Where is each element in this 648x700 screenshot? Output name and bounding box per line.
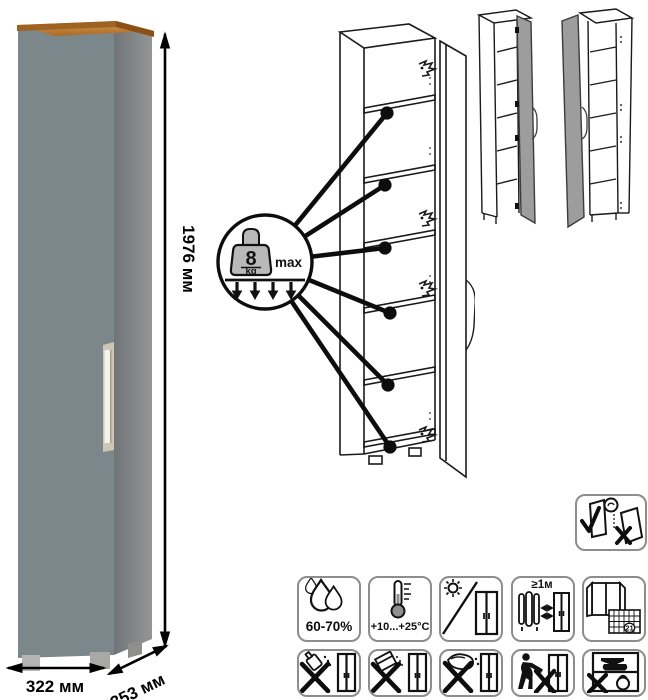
door-handle (103, 342, 114, 452)
weight-unit: kg (245, 266, 256, 277)
variant-door-panel (517, 16, 535, 223)
drip-dots (475, 658, 479, 665)
height-dimension: 1976 мм (161, 33, 199, 647)
no-overloading-box (582, 649, 646, 697)
radiator-glyph (519, 592, 539, 631)
anvil-glyph (601, 658, 627, 671)
variant-door-panel (562, 15, 584, 227)
no-dragging-icon (513, 651, 573, 693)
temperature-range-box: +10...+25°C (368, 576, 432, 642)
height-label: 1976 мм (179, 225, 198, 293)
hinges (419, 61, 435, 442)
no-solvents-icon (299, 651, 359, 693)
humidity-label: 60-70% (299, 620, 359, 634)
humidity-range-box: 60-70% (297, 576, 361, 642)
shelf-load-callout: 8 kg max (218, 215, 312, 309)
no-wet-cloth-icon (441, 651, 501, 693)
no-solvents-box (297, 649, 361, 697)
wardrobe-glyph (476, 592, 497, 634)
open-door (440, 41, 475, 477)
cabinet-side-panel (114, 26, 152, 655)
wardrobe-glyph (409, 654, 426, 691)
max-label: max (275, 255, 303, 270)
open-cabinet-diagram: 8 kg max (213, 8, 475, 508)
ventilation-calendar-icon: 21 (584, 578, 644, 638)
spacing-arrows (542, 606, 552, 618)
door-upright-icon (578, 496, 644, 546)
width-label: 322 мм (26, 677, 84, 696)
avoid-direct-sunlight-icon (441, 578, 501, 638)
min-distance-from-heat-icon: ≥1м (513, 578, 573, 638)
distance-label: ≥1м (531, 579, 552, 591)
temperature-range-icon (370, 578, 430, 620)
variant-door-left (558, 7, 646, 237)
wardrobe-glyph (554, 593, 569, 631)
no-abrasive-powder-icon (370, 651, 430, 693)
cabinet-body (17, 21, 154, 671)
humidity-range-icon (299, 578, 359, 620)
variant-door-right (474, 7, 550, 237)
calendar-day-label: 21 (625, 624, 633, 633)
no-dragging-box (511, 649, 575, 697)
avoid-direct-sunlight-box (439, 576, 503, 642)
shelves (364, 95, 435, 447)
cabinet-front-door (18, 26, 114, 658)
no-abrasive-powder-box (368, 649, 432, 697)
no-overloading-icon (584, 651, 644, 693)
wardrobe-glyph (481, 654, 497, 691)
shelf-pin-dots (620, 36, 622, 209)
cabinet-photo: 1976 мм 322 мм 353 мм (6, 14, 206, 700)
temperature-label: +10...+25°C (370, 622, 430, 633)
calendar-glyph: 21 (609, 610, 640, 633)
width-dimension: 322 мм (7, 664, 105, 697)
depth-label: 353 мм (107, 670, 168, 700)
person-glyph (518, 653, 543, 689)
kettlebell-glyph (617, 676, 629, 690)
min-distance-from-heat-box: ≥1м (511, 576, 575, 642)
ventilation-calendar-box: 21 (582, 576, 646, 642)
shelf-callout-dots (378, 106, 396, 453)
product-sheet: 1976 мм 322 мм 353 мм (0, 0, 648, 700)
wardrobe-glyph (338, 654, 355, 691)
transport-doors-upright-notice (575, 494, 647, 551)
no-wet-cloth-box (439, 649, 503, 697)
